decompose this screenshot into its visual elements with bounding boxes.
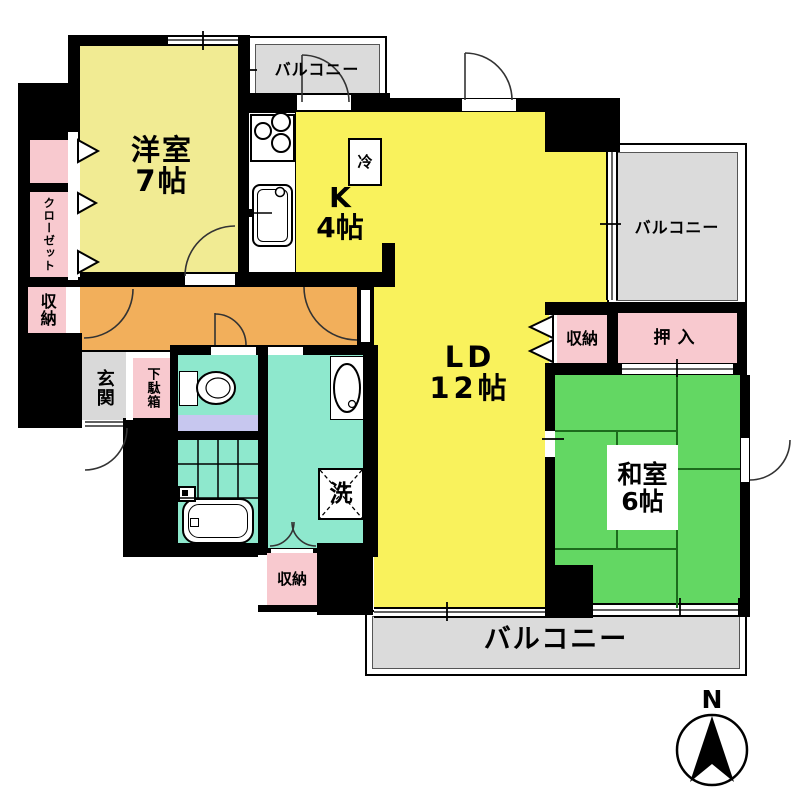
door-gap-washroom	[267, 347, 303, 355]
storage-bottom-box: 収納	[267, 553, 317, 605]
balcony-right-text: バルコニー	[635, 219, 720, 236]
storage-hall-label: 収納	[566, 330, 598, 347]
bath-faucet-knob	[182, 490, 188, 496]
wall	[363, 345, 378, 557]
wall	[123, 543, 258, 557]
shoe-cabinet-box: 下駄箱	[133, 358, 170, 418]
laundry-label: 洗	[330, 482, 353, 507]
entrance-text: 玄関	[94, 369, 113, 407]
door-gap-ld-top	[462, 99, 516, 111]
closet-label: クローゼット	[43, 197, 55, 272]
window-western-top	[168, 37, 240, 44]
door-gap-toilet	[211, 347, 256, 355]
kitchen-name: K	[329, 183, 351, 213]
refrigerator-label: 冷	[357, 154, 372, 170]
toilet-tank	[179, 371, 198, 406]
wall	[545, 98, 620, 152]
kitchen-label: K 4帖	[298, 180, 382, 246]
wall	[82, 350, 170, 352]
compass-north-label: N	[698, 684, 726, 714]
wall	[30, 183, 68, 192]
wall	[382, 243, 395, 287]
closet-track	[68, 132, 78, 280]
balcony-right-label: バルコニー	[616, 215, 738, 241]
storage-hall-box: 収納	[557, 315, 607, 363]
door-arc-ld-top	[465, 53, 512, 100]
refrigerator-box: 冷	[348, 138, 382, 186]
storage-bottom-label: 収納	[277, 571, 307, 587]
japanese-room-label-box: 和室 6帖	[607, 445, 678, 530]
wash-basin	[330, 356, 364, 420]
door-arc-entrance	[85, 428, 127, 470]
wall	[738, 598, 750, 617]
western-room-label: 洋室 7帖	[92, 126, 232, 206]
wall	[178, 431, 258, 440]
wall	[258, 345, 268, 555]
kitchen-sink-inner	[257, 189, 288, 242]
opening-oshiire	[622, 364, 733, 374]
balcony-top-text: バルコニー	[275, 61, 360, 78]
wall	[123, 418, 178, 557]
toilet-mat	[178, 415, 258, 431]
living-dining-size: 12帖	[429, 373, 510, 404]
closet-upper-box	[30, 140, 68, 183]
opening-washitsu-left	[545, 431, 555, 457]
wall	[545, 375, 555, 608]
western-room-name: 洋室	[131, 135, 193, 166]
balcony-bottom-label: バルコニー	[436, 620, 676, 660]
living-dining-label: LD 12帖	[408, 338, 532, 408]
door-gap-balcony-top	[297, 95, 351, 110]
closet-box: クローゼット	[30, 192, 68, 277]
storage-left-label: 収納	[38, 293, 55, 327]
oshiire-box: 押入	[618, 313, 737, 363]
western-room-size: 7帖	[135, 166, 188, 197]
kitchen-size: 4帖	[316, 213, 363, 243]
door-leaf-washitsu	[740, 437, 750, 483]
living-dining-name: LD	[445, 342, 496, 373]
storage-left-track	[66, 287, 78, 333]
floor-plan: クローゼット 収納 下駄箱 収納 押入 収納 冷 洗	[0, 0, 800, 797]
door-arc-washitsu	[750, 440, 790, 480]
window-washitsu-bottom	[593, 603, 738, 617]
wall	[80, 272, 390, 287]
shoe-cabinet-label: 下駄箱	[144, 367, 158, 409]
shoebox-strip	[126, 358, 133, 420]
balcony-bottom-text: バルコニー	[484, 625, 628, 654]
japanese-room-name: 和室	[617, 461, 667, 488]
window-ld-bottom	[374, 607, 545, 618]
oshiire-label: 押入	[654, 329, 702, 347]
japanese-room-size: 6帖	[621, 488, 663, 515]
door-leaf-corridor-ld	[360, 289, 371, 343]
laundry-label-box: 洗	[322, 476, 360, 512]
wall	[258, 605, 318, 612]
balcony-top-label: バルコニー	[250, 58, 384, 82]
storage-left-box: 収納	[28, 287, 66, 333]
wall	[545, 600, 593, 618]
wall	[18, 333, 82, 428]
bathtub-drain	[190, 518, 199, 527]
entrance-label: 玄関	[85, 358, 123, 418]
stove	[250, 114, 295, 162]
compass-icon	[677, 715, 747, 785]
door-gap-western	[185, 274, 235, 285]
wall	[740, 375, 750, 608]
wall	[607, 313, 618, 363]
corridor-floor	[80, 287, 372, 350]
compass-north-text: N	[702, 686, 723, 713]
